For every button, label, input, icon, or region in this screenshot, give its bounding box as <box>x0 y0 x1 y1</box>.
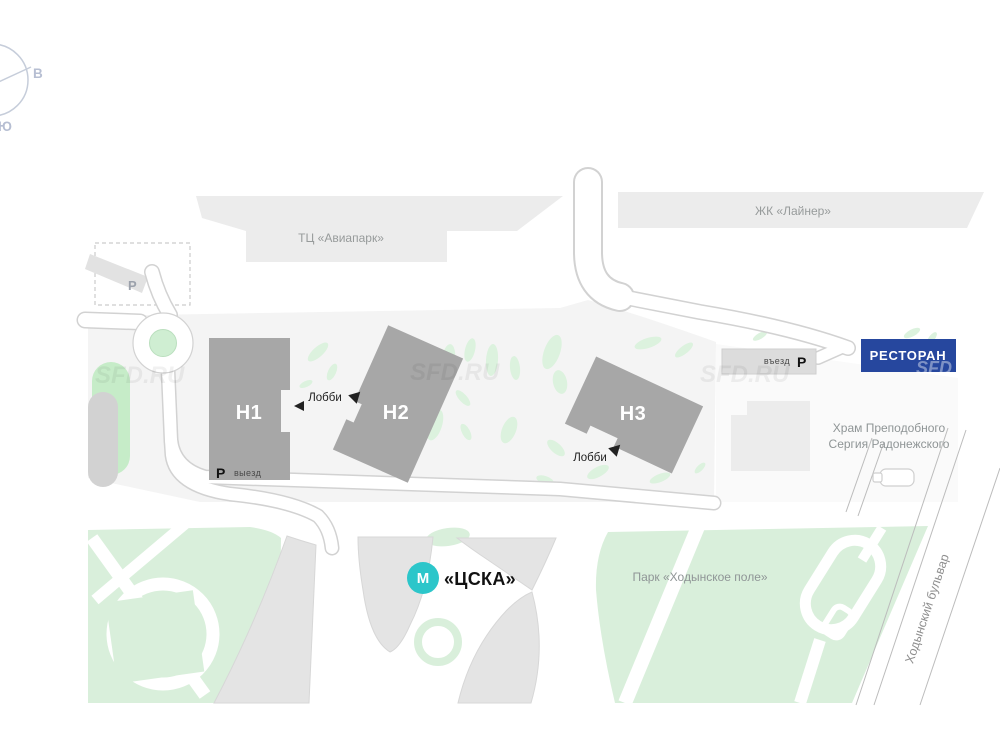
gray-blob <box>88 392 118 487</box>
liner-label: ЖК «Лайнер» <box>755 204 831 218</box>
parking-exit-label: выезд <box>234 468 262 478</box>
building-h2-label: Н2 <box>383 402 410 424</box>
watermark: SFD.RU <box>95 362 185 389</box>
compass: В Ю <box>0 44 43 134</box>
aviapark-label: ТЦ «Авиапарк» <box>298 231 384 245</box>
park-label: Парк «Ходынское поле» <box>632 570 767 584</box>
metro-name: «ЦСКА» <box>444 569 516 589</box>
liner-block: ЖК «Лайнер» <box>618 192 984 228</box>
church-label-line2: Сергия Радонежского <box>829 437 950 451</box>
map-canvas: P <box>0 0 1000 750</box>
parking-entry-p-icon: Р <box>797 354 806 370</box>
parking-exit-p-icon: Р <box>216 465 225 481</box>
site-map: P <box>0 0 1000 750</box>
boulevard-label: Ходынский бульвар <box>902 552 952 665</box>
compass-east: В <box>33 66 43 81</box>
building-h1: Н1 Р выезд <box>209 338 290 481</box>
aviapark-block: ТЦ «Авиапарк» <box>196 196 563 262</box>
parking-p-icon: P <box>128 278 137 293</box>
lobby-label: Лобби <box>308 392 342 404</box>
compass-south: Ю <box>0 119 12 134</box>
church-label-line1: Храм Преподобного <box>833 421 946 435</box>
building-h3-label: Н3 <box>620 403 647 425</box>
parking-area: P <box>85 243 190 305</box>
watermark: SFD.RU <box>410 359 500 386</box>
lobby-label: Лобби <box>573 452 607 464</box>
leaf <box>902 326 921 341</box>
watermark-on-badge: SFD <box>916 358 952 378</box>
building-h1-label: Н1 <box>236 402 263 424</box>
watermark: SFD.RU <box>700 361 790 388</box>
metro-letter: М <box>417 570 430 587</box>
